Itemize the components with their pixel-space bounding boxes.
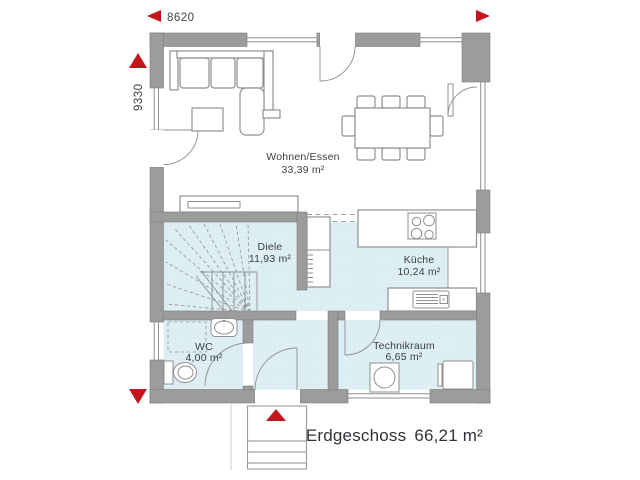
heating-unit (438, 361, 473, 389)
floor-title: Erdgeschoss66,21 m² (306, 426, 483, 445)
dimension-width: 8620 (147, 10, 490, 24)
chair (357, 96, 375, 108)
label-kueche: Küche (404, 254, 435, 266)
floor-diele (164, 222, 298, 311)
label-kueche-area: 10,24 m² (397, 266, 440, 278)
label-wohnen-essen-area: 33,39 m² (281, 164, 324, 176)
label-diele-area: 11,93 m² (249, 253, 292, 265)
chair (407, 148, 425, 160)
sofa (170, 51, 280, 135)
kitchen-counter-sink (388, 288, 477, 311)
door-top-terrace (320, 33, 355, 81)
wall-stub-kitchen (297, 212, 307, 290)
chair (382, 96, 400, 108)
chair (430, 116, 443, 136)
dim-arrow-down (129, 389, 147, 404)
wall-wc-right-lower (243, 386, 253, 390)
dining-table-set (342, 96, 443, 160)
window-left-wc (150, 322, 164, 360)
floor-passage (296, 287, 388, 311)
corner-column (462, 33, 490, 82)
chair (342, 116, 355, 136)
wall-technik-left (328, 311, 338, 390)
wall-technik-top-b (380, 311, 477, 320)
chair (382, 148, 400, 160)
floor-entry (253, 320, 328, 390)
chair (357, 148, 375, 160)
washing-machine (370, 363, 399, 392)
wall-technik-top-a (338, 311, 345, 320)
door-left-garden (150, 130, 198, 167)
label-wohnen-essen: Wohnen/Essen (266, 151, 339, 163)
dim-arrow-right (476, 10, 490, 22)
dim-height-label: 9330 (133, 83, 145, 111)
fridge-cabinet (307, 217, 330, 287)
wall-wc-right-upper (243, 320, 253, 343)
window-left-living (150, 88, 164, 130)
window-top-right (420, 33, 462, 47)
wall-living-diele (150, 212, 297, 222)
chair (407, 96, 425, 108)
toilet (164, 361, 197, 384)
dim-arrow-up (129, 53, 147, 68)
washbasin (211, 319, 237, 337)
window-top-left (247, 33, 317, 47)
floorplan-canvas: 8620 9330 Wohnen/Essen 33,39 m² Diele 11… (0, 0, 640, 480)
dimension-height: 9330 (129, 53, 147, 404)
coffee-table (192, 108, 223, 131)
dim-arrow-left (147, 10, 161, 22)
sideboard (180, 196, 298, 212)
label-technikraum-area: 6,65 m² (386, 351, 423, 363)
dining-table (355, 108, 430, 148)
window-right-kitchen (477, 233, 491, 293)
label-diele: Diele (258, 241, 283, 253)
dim-width-label: 8620 (167, 12, 195, 24)
door-right-terrace (448, 82, 490, 190)
label-wc-area: 4,00 m² (186, 352, 223, 364)
